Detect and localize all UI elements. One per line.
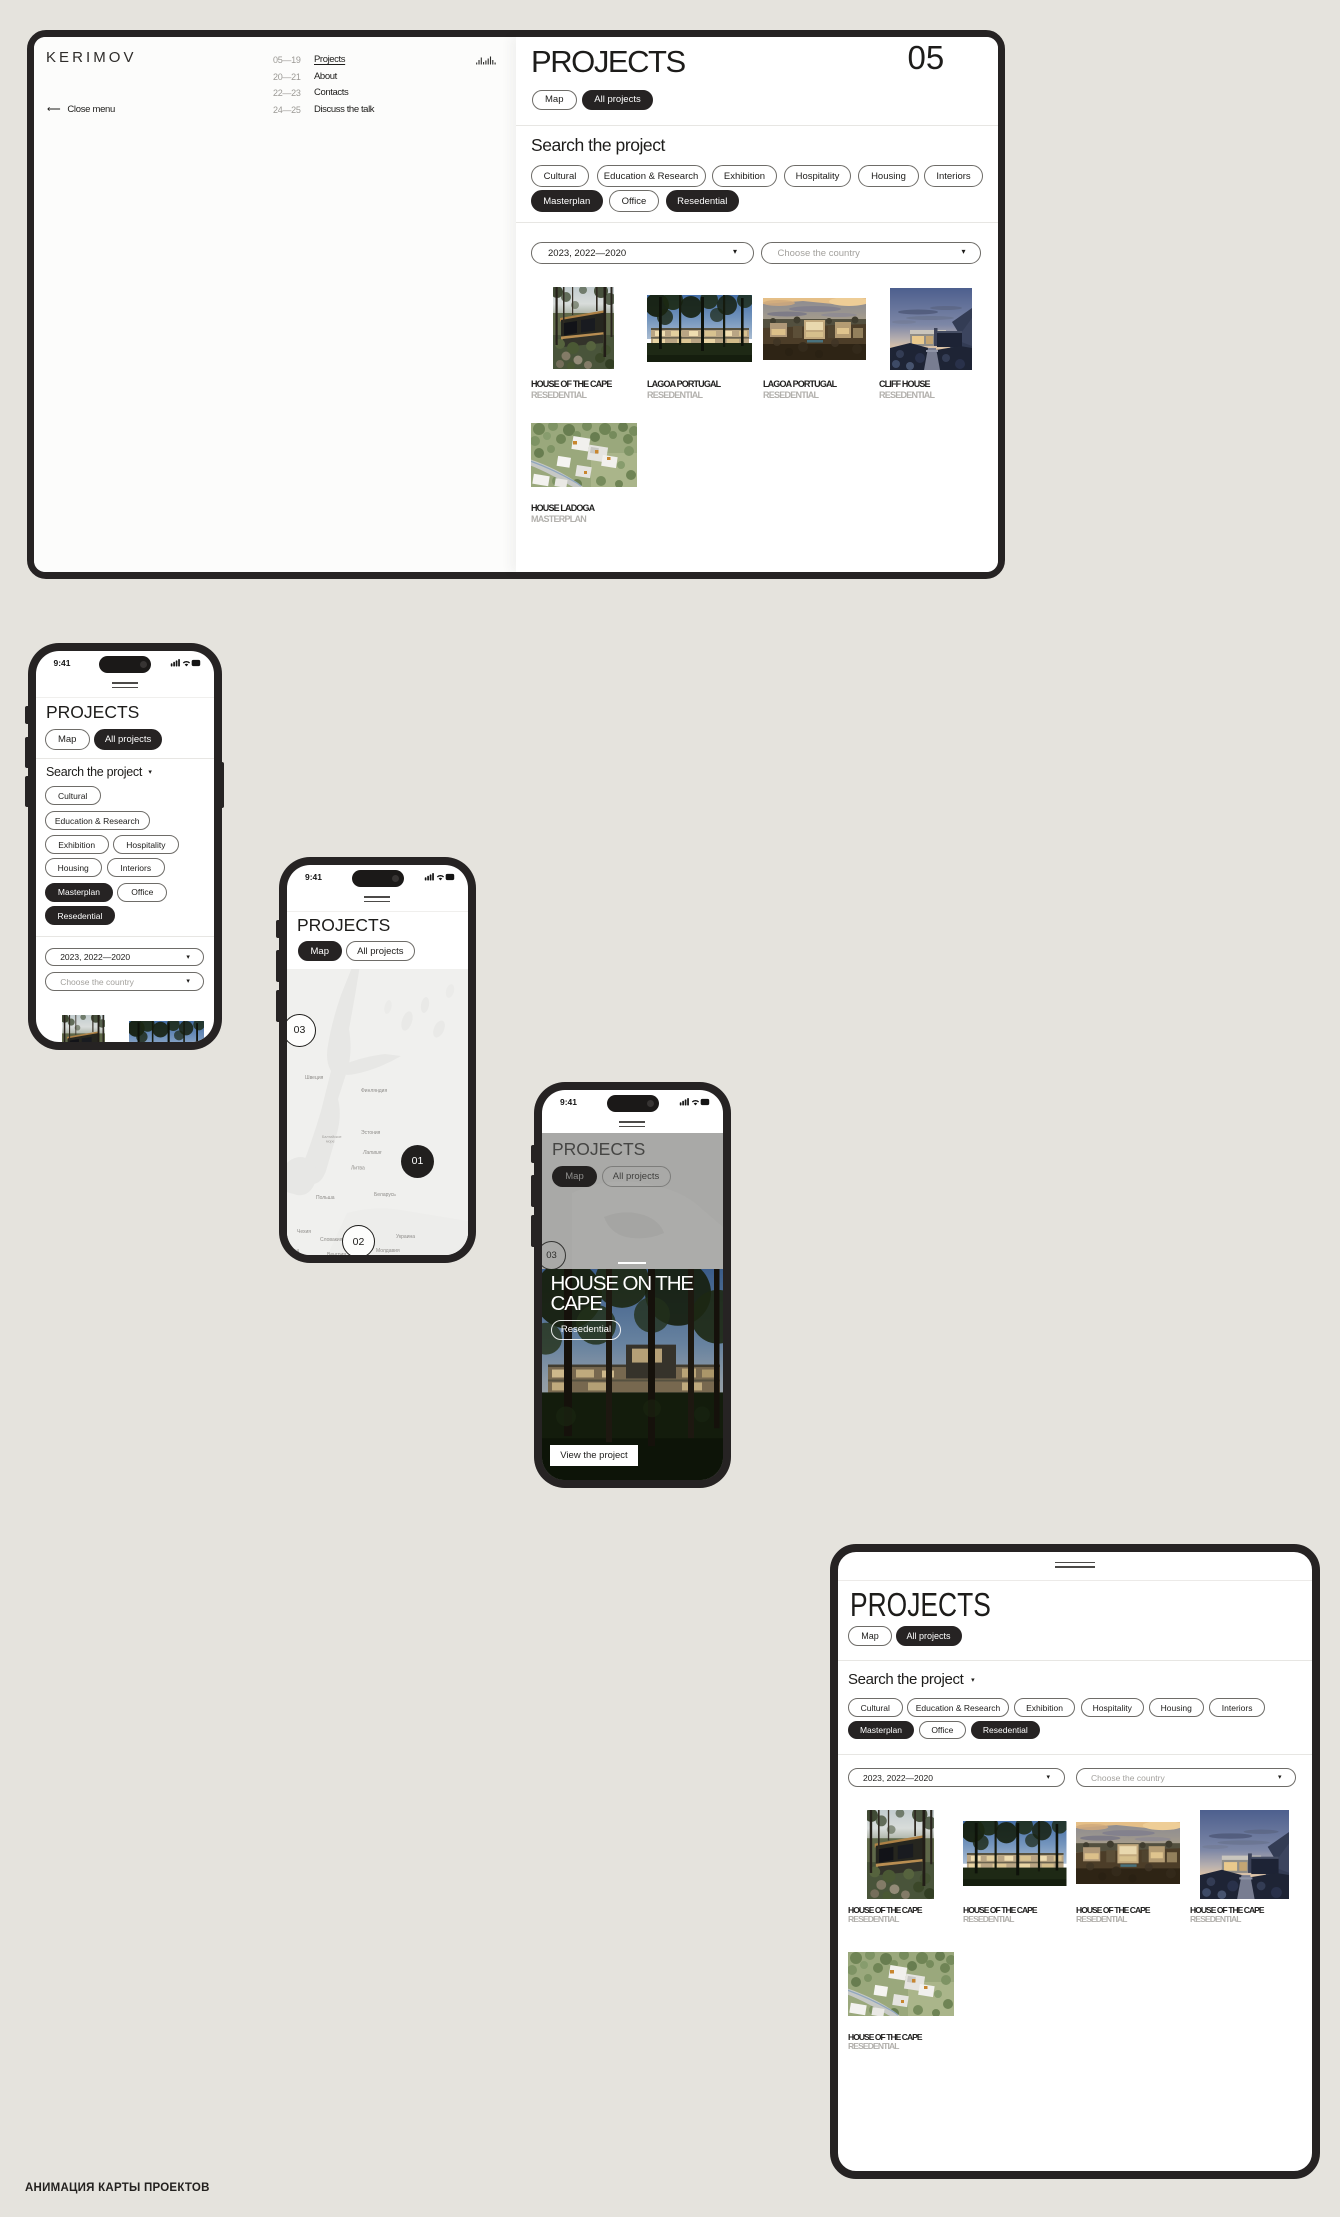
svg-text:Польша: Польша bbox=[316, 1195, 335, 1201]
svg-text:Швеция: Швеция bbox=[305, 1075, 324, 1081]
svg-text:рия: рия bbox=[291, 1248, 300, 1254]
svg-text:море: море bbox=[326, 1139, 334, 1143]
svg-text:Украина: Украина bbox=[396, 1234, 415, 1240]
svg-text:Финляндия: Финляндия bbox=[361, 1088, 387, 1094]
svg-text:Чехия: Чехия bbox=[297, 1229, 311, 1235]
svg-text:Молдавия: Молдавия bbox=[376, 1248, 400, 1254]
svg-text:Словакия: Словакия bbox=[320, 1237, 343, 1243]
svg-text:Беларусь: Беларусь bbox=[374, 1192, 396, 1198]
svg-text:Литва: Литва bbox=[351, 1165, 365, 1171]
svg-text:Венгрия: Венгрия bbox=[327, 1252, 346, 1256]
svg-text:Латвия: Латвия bbox=[362, 1150, 382, 1156]
svg-text:Эстония: Эстония bbox=[361, 1130, 381, 1136]
svg-text:Балтийское: Балтийское bbox=[322, 1135, 342, 1139]
